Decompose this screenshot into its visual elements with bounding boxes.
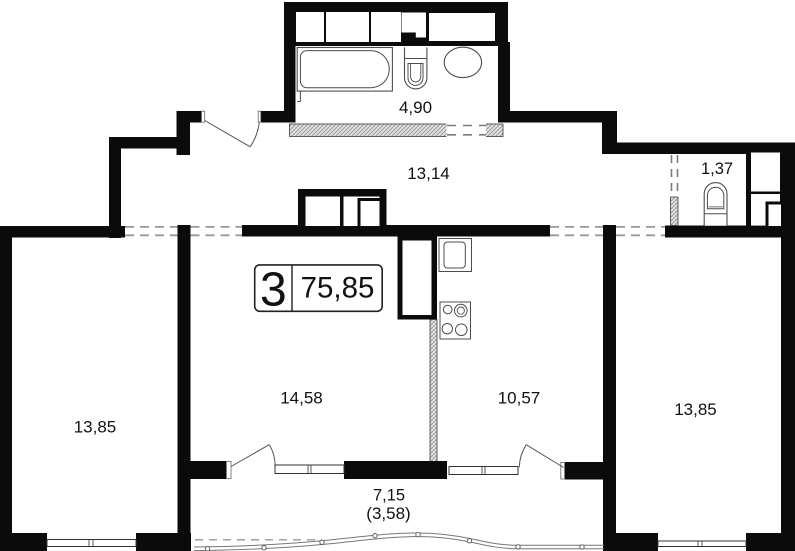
svg-text:13,14: 13,14 bbox=[407, 164, 450, 183]
svg-text:4,90: 4,90 bbox=[399, 98, 432, 117]
svg-text:13,85: 13,85 bbox=[74, 418, 117, 437]
svg-text:1,37: 1,37 bbox=[701, 160, 733, 178]
svg-text:(3,58): (3,58) bbox=[366, 504, 410, 523]
svg-text:7,15: 7,15 bbox=[373, 487, 405, 505]
svg-text:10,57: 10,57 bbox=[498, 389, 541, 408]
svg-text:13,85: 13,85 bbox=[674, 400, 717, 419]
svg-text:3: 3 bbox=[260, 264, 287, 317]
svg-text:75,85: 75,85 bbox=[301, 272, 375, 305]
svg-text:14,58: 14,58 bbox=[280, 389, 323, 408]
